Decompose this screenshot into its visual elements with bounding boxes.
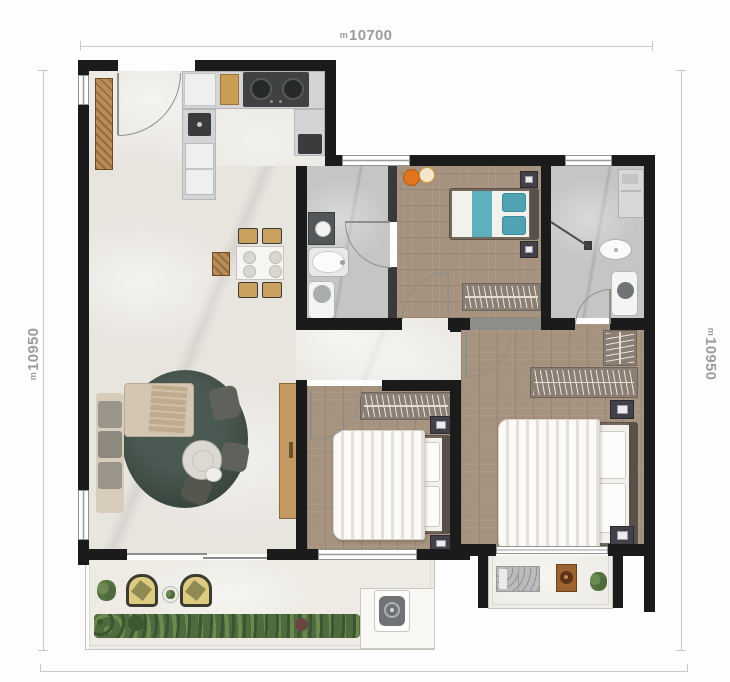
wall (296, 318, 388, 330)
lamp-icon (617, 405, 628, 414)
plant-icon (166, 590, 175, 599)
wall (644, 155, 655, 612)
nightstand (520, 241, 538, 258)
duvet (333, 430, 425, 540)
knob-icon (270, 100, 273, 103)
fruit-decor-icon (419, 167, 435, 183)
upper-cabinet (184, 73, 216, 106)
plate-icon (269, 265, 282, 278)
basin-board (556, 564, 577, 592)
wall (267, 549, 318, 560)
burner-icon (250, 78, 272, 100)
window (565, 155, 612, 166)
sofa-throw (148, 385, 187, 435)
washer-detail (499, 569, 507, 589)
fruit-decor-icon (403, 169, 420, 186)
fridge-divider (186, 168, 213, 170)
dining-chair (262, 228, 282, 244)
dimension-tick (38, 70, 48, 71)
chair-cushion (185, 580, 206, 601)
plate-icon (269, 251, 282, 264)
bed-teal (450, 189, 538, 239)
dimension-label-top: m10700 (306, 26, 426, 44)
wall (613, 556, 623, 608)
dimension-label-left: m10950 (24, 324, 40, 384)
washbasin-icon (315, 221, 331, 237)
cooktop (243, 72, 309, 107)
burner-icon (282, 78, 304, 100)
dimension-line-bottom (40, 671, 688, 672)
wall-partition (470, 318, 541, 330)
wall (610, 318, 644, 330)
pillow (502, 216, 526, 235)
wall (608, 544, 644, 556)
wall (325, 60, 336, 166)
basin-center (564, 575, 568, 579)
bathroom-vanity (618, 169, 644, 218)
wall (478, 556, 488, 608)
window (318, 549, 417, 560)
wall (78, 60, 89, 75)
potted-plant (590, 572, 607, 591)
plate-icon (243, 251, 256, 264)
wall (195, 60, 336, 71)
side-table (205, 467, 222, 482)
patio-table (162, 586, 179, 603)
lamp-icon (436, 540, 446, 547)
plate-icon (243, 265, 256, 278)
vanity-divider (621, 190, 641, 192)
wall (325, 155, 342, 166)
dimension-unit: m (28, 372, 38, 380)
wardrobe-rail (534, 382, 634, 384)
toilet (611, 271, 638, 316)
toilet-lid (313, 285, 331, 303)
dimension-line-top (80, 46, 653, 47)
washer-mat (496, 566, 540, 592)
bed-runner (472, 191, 492, 237)
sliding-door-track (127, 553, 207, 555)
dimension-tick (676, 70, 686, 71)
chair-cushion (131, 580, 152, 601)
bush-icon (128, 615, 144, 631)
dining-chair (238, 228, 258, 244)
dimension-tick (676, 650, 686, 651)
toilet-lid (617, 282, 634, 299)
bush-icon (295, 618, 308, 631)
dimension-tick (80, 41, 81, 51)
drain-icon (614, 248, 618, 252)
pillow (596, 431, 626, 479)
wardrobe-l-vertical (603, 330, 637, 366)
window (78, 490, 89, 540)
potted-plant (97, 580, 116, 601)
dimension-label-right: m10950 (704, 324, 720, 384)
sofa-cushion (98, 462, 122, 489)
window (78, 75, 89, 105)
washer-divider (518, 567, 519, 591)
cutting-board (220, 74, 239, 105)
console-handle (289, 442, 293, 458)
bedroom-1-door-leaf (447, 272, 449, 318)
wall (450, 380, 461, 554)
wardrobe-rail (364, 405, 449, 407)
wall (296, 166, 307, 318)
dimension-line-left (43, 70, 44, 651)
wardrobe-rail (619, 332, 621, 364)
bathroom-2-door-leaf (609, 289, 611, 324)
wall (541, 155, 551, 318)
nightstand (610, 526, 634, 545)
nightstand (520, 171, 538, 188)
shoe-cabinet (95, 78, 113, 170)
dining-chair (262, 282, 282, 298)
nightstand (430, 416, 452, 434)
sliding-door-track (203, 557, 267, 559)
kitchen-sink (188, 113, 211, 136)
wall (382, 380, 450, 391)
knob-icon (279, 100, 282, 103)
armchair (219, 441, 250, 473)
wall (388, 318, 402, 330)
dimension-tick (687, 664, 688, 672)
bathtub (308, 247, 349, 277)
headboard (530, 189, 538, 239)
dimension-line-right (681, 70, 682, 651)
lamp-icon (436, 421, 446, 429)
dimension-value: 10700 (349, 27, 392, 44)
bathroom-1-door-leaf (345, 221, 390, 223)
dimension-value: 10950 (702, 337, 719, 380)
dimension-tick (652, 41, 653, 51)
sofa-cushion (98, 401, 122, 428)
refrigerator (185, 143, 214, 195)
dimension-tick (38, 650, 48, 651)
dimension-unit: m (340, 30, 348, 40)
floor-plan: m10700 m10950 m10950 (0, 0, 730, 682)
lamp-icon (617, 531, 628, 540)
lamp-icon (525, 176, 533, 184)
duvet (498, 419, 600, 551)
ac-unit (374, 590, 410, 632)
wall (78, 105, 89, 490)
pillow (502, 193, 526, 212)
drain-icon (340, 260, 345, 265)
wall (541, 318, 575, 330)
lamp-icon (525, 246, 533, 254)
nightstand (610, 400, 634, 419)
wall-partition (388, 166, 397, 222)
dimension-unit: m (706, 328, 716, 336)
washbasin (599, 239, 632, 260)
dining-chair (238, 282, 258, 298)
side-cabinet (212, 252, 230, 276)
lounge-chair (180, 574, 212, 607)
wall (450, 324, 461, 332)
bathroom-vanity (308, 212, 335, 245)
bedroom-2-door-leaf (310, 391, 312, 440)
vanity-shelf (622, 174, 638, 184)
wardrobe (462, 283, 541, 311)
master-door-leaf (465, 332, 467, 376)
wall (78, 549, 127, 560)
faucet-icon (197, 122, 202, 127)
sliding-window (496, 546, 608, 554)
wall (296, 380, 307, 554)
wall-partition (388, 267, 397, 318)
dimension-tick (40, 664, 41, 672)
entrance-door-leaf (117, 73, 119, 135)
wall (461, 544, 496, 556)
sofa-cushion (98, 431, 122, 458)
wardrobe-l-horizontal (530, 367, 638, 398)
lounge-chair (126, 574, 158, 607)
wardrobe-rail (465, 296, 537, 298)
toilet (308, 281, 335, 319)
dimension-value: 10950 (25, 328, 42, 371)
headboard (442, 436, 450, 533)
kitchen-sink (298, 134, 322, 154)
window (342, 155, 410, 166)
ac-fan-center (390, 608, 394, 612)
